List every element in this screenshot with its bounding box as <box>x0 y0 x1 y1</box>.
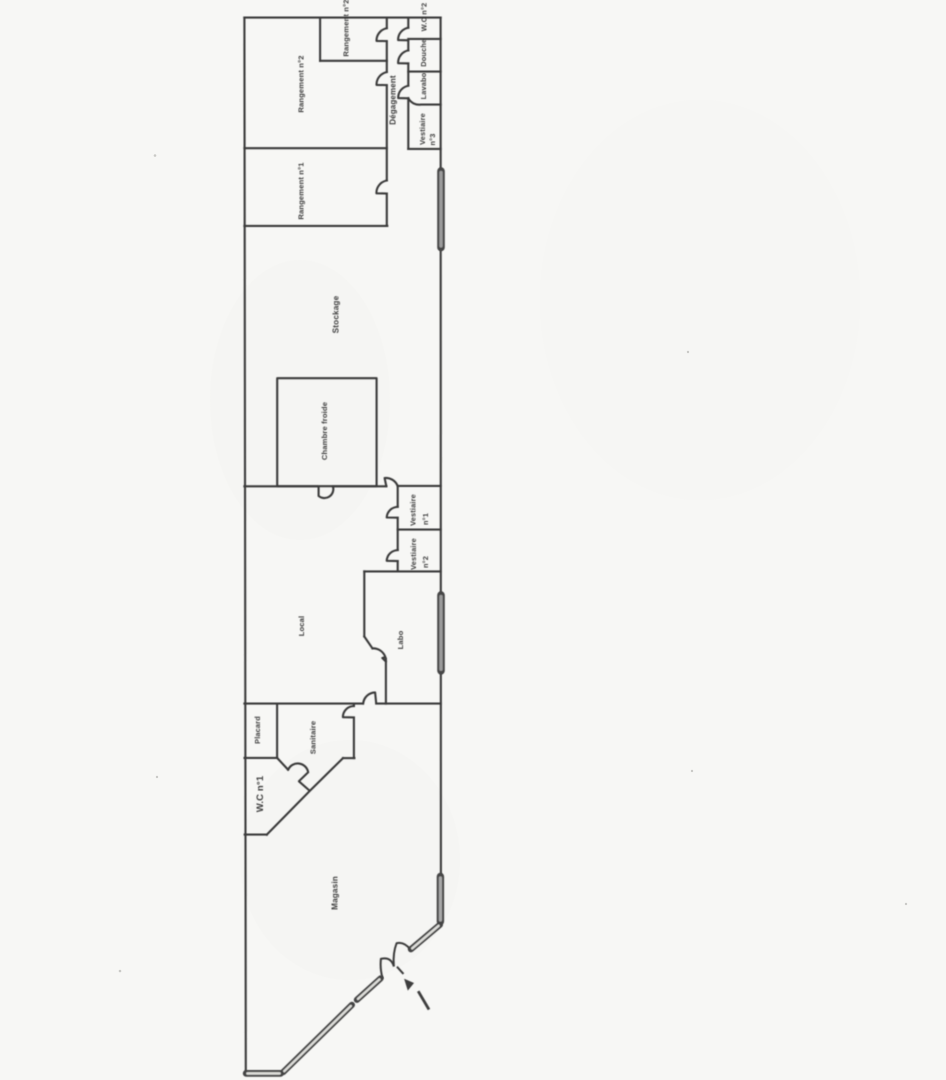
svg-text:Stockage: Stockage <box>332 295 341 333</box>
svg-text:Douche: Douche <box>419 39 428 67</box>
svg-text:Lavabo: Lavabo <box>419 72 428 99</box>
svg-text:Rangement n°2: Rangement n°2 <box>342 0 351 57</box>
svg-text:W.C n°2: W.C n°2 <box>419 3 428 32</box>
svg-text:Rangement n°2: Rangement n°2 <box>297 55 306 112</box>
svg-text:Vestiaire: Vestiaire <box>418 113 427 145</box>
svg-text:W.C n°1: W.C n°1 <box>255 775 266 812</box>
svg-text:Placard: Placard <box>253 716 262 744</box>
svg-text:n°1: n°1 <box>421 513 430 525</box>
svg-text:Local: Local <box>297 616 306 637</box>
svg-text:Magasin: Magasin <box>331 876 340 910</box>
svg-text:n°3: n°3 <box>428 133 437 145</box>
svg-text:Sanitaire: Sanitaire <box>309 721 318 754</box>
svg-text:Dégagement: Dégagement <box>389 75 398 125</box>
svg-text:Vestiaire: Vestiaire <box>409 538 418 570</box>
svg-text:Vestiaire: Vestiaire <box>408 494 417 526</box>
svg-text:Labo: Labo <box>396 630 405 649</box>
svg-text:Rangement n°1: Rangement n°1 <box>297 162 306 220</box>
svg-text:n°2: n°2 <box>421 556 430 568</box>
svg-text:Chambre froide: Chambre froide <box>320 402 329 460</box>
